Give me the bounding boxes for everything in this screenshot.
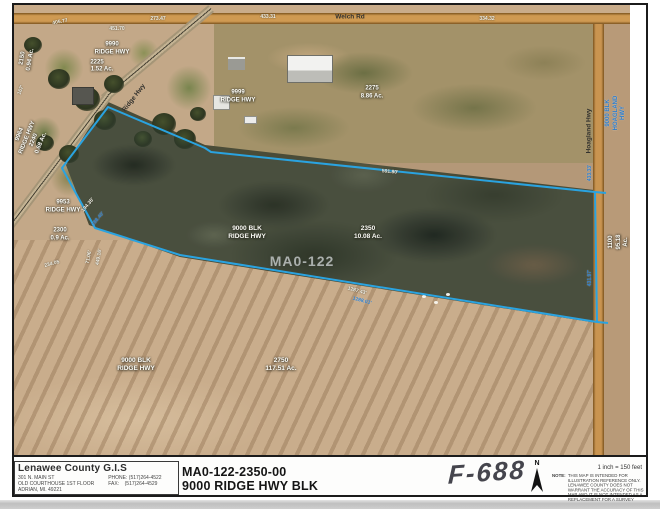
road-label-welch-rd: Welch Rd (335, 14, 365, 21)
parcel-label-blue: 9000 BLK HOAGLAND HWY (605, 96, 628, 131)
watermark-label: MA0-122 (270, 253, 335, 269)
parcel-label: 9953 RIDGE HWY (46, 200, 81, 215)
north-arrow: N (527, 460, 547, 500)
dimension-label: 433.31 (260, 14, 275, 20)
address-line: ADRIAN, MI. 49221 (18, 487, 94, 493)
north-label: N (527, 460, 547, 467)
parcel-label: 2750 117.51 Ac. (265, 357, 296, 373)
map-scale: 1 inch = 150 feet (597, 465, 642, 471)
north-arrow-icon (528, 467, 546, 495)
parcel-label: 9000 BLK RIDGE HWY (228, 225, 266, 241)
parcel-id-number: MA0-122-2350-00 (182, 466, 318, 480)
disclaimer-note: NOTE: THIS MAP IS INTENDED FOR ILLUSTRAT… (552, 474, 648, 502)
parcel-id-address: 9000 RIDGE HWY BLK (182, 480, 318, 494)
handwritten-annotation: F-688 (448, 454, 527, 491)
parcel-label: 9000 BLK RIDGE HWY (117, 357, 155, 373)
org-contact: PHONE: (517)264-4522 FAX: (517)264-4529 (108, 475, 161, 493)
dimension-label: 451.70 (109, 26, 124, 32)
dimension-label: 334.32 (479, 16, 494, 22)
county-info-box: Lenawee County G.I.S 301 N. MAIN ST OLD … (14, 461, 179, 495)
scanned-gis-map-page: Welch Rd Ridge Hwy Hoagland Hwy 9990 RID… (0, 0, 660, 509)
org-name: Lenawee County G.I.S (18, 463, 175, 474)
dimension-label: 431.97' (587, 270, 593, 286)
fax-line: FAX: (517)264-4529 (108, 481, 161, 487)
map-footer: Lenawee County G.I.S 301 N. MAIN ST OLD … (14, 455, 646, 495)
dimension-label: 433.33' (587, 165, 593, 181)
parcel-label: 2350 10.08 Ac. (354, 225, 382, 241)
aerial-photo: Welch Rd Ridge Hwy Hoagland Hwy 9990 RID… (14, 5, 630, 455)
parcel-label: 9990 RIDGE HWY (95, 42, 130, 57)
fax-label: FAX: (108, 481, 119, 487)
parcel-id-block: MA0-122-2350-00 9000 RIDGE HWY BLK (182, 466, 318, 493)
parcel-label: 2300 0.9 Ac. (50, 228, 69, 243)
note-label: NOTE: (552, 474, 566, 502)
org-address: 301 N. MAIN ST OLD COURTHOUSE 1ST FLOOR … (18, 475, 94, 493)
dimension-label: 273.47 (150, 16, 165, 22)
note-text: THIS MAP IS INTENDED FOR ILLUSTRATION RE… (568, 474, 649, 502)
road-label-hoagland-hwy: Hoagland Hwy (586, 109, 593, 154)
parcel-label: 9999 RIDGE HWY (221, 90, 256, 105)
parcel-label: 2275 8.86 Ac. (361, 86, 383, 101)
fax-number: (517)264-4529 (125, 481, 158, 487)
parcel-label: 1100 95.18 Ac. (608, 234, 630, 249)
parcel-label: 1.52 Ac. (91, 66, 113, 74)
